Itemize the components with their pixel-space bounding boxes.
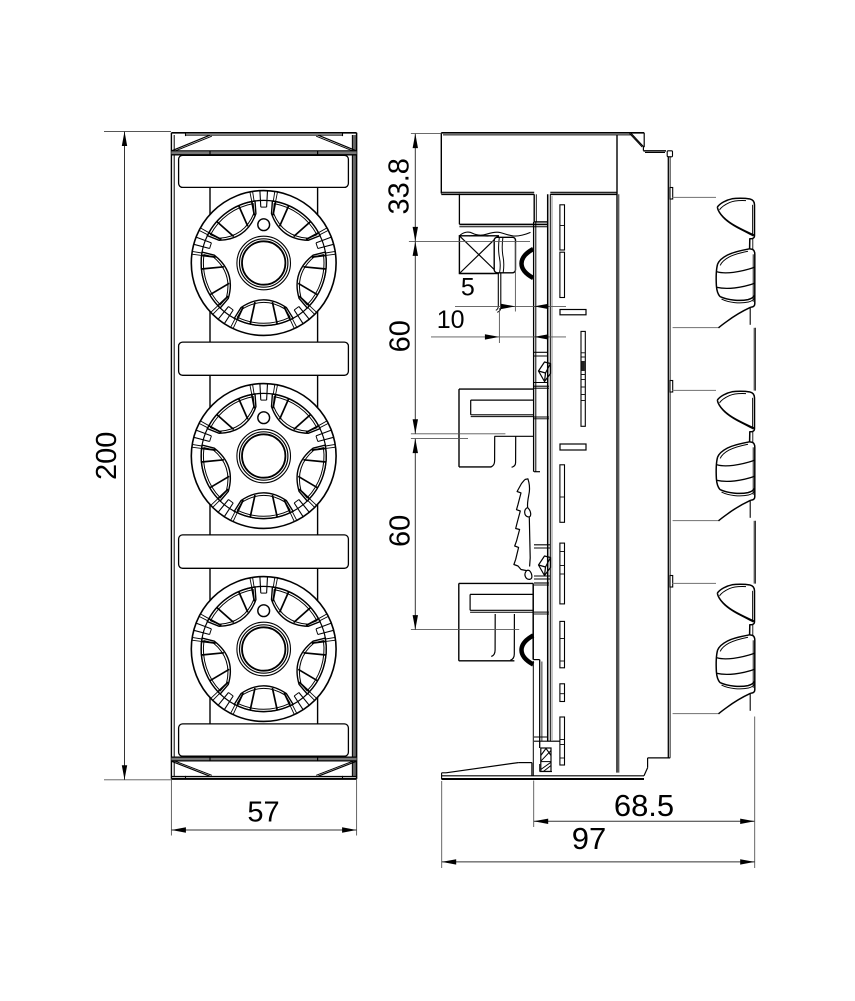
- svg-text:33.8: 33.8: [383, 158, 415, 214]
- svg-text:97: 97: [572, 821, 606, 856]
- svg-text:200: 200: [91, 432, 123, 480]
- svg-text:68.5: 68.5: [614, 788, 674, 823]
- svg-text:60: 60: [385, 515, 417, 547]
- svg-text:5: 5: [461, 274, 475, 302]
- svg-text:10: 10: [437, 306, 465, 334]
- svg-text:60: 60: [385, 320, 417, 352]
- svg-text:57: 57: [247, 797, 279, 829]
